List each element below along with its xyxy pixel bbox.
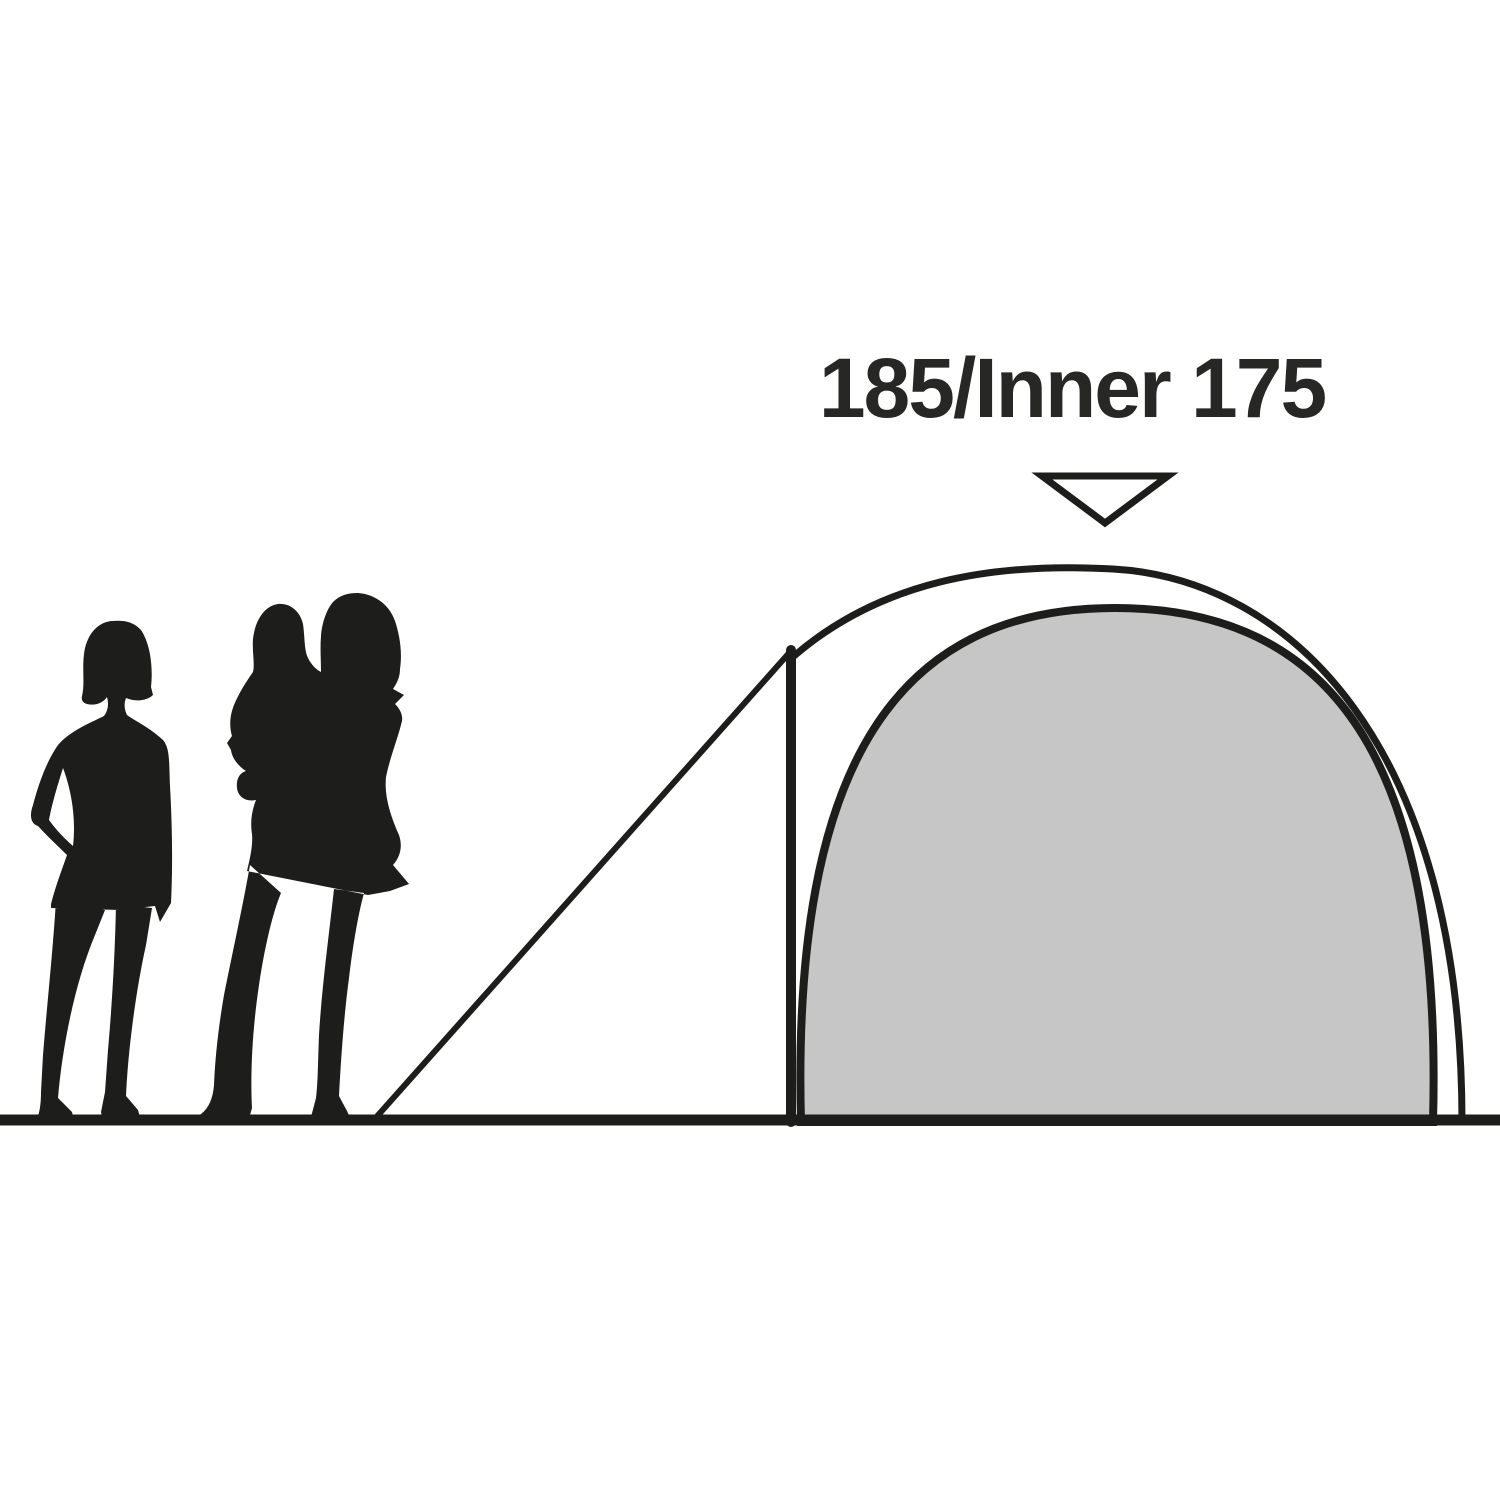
- guy-line: [372, 652, 790, 1122]
- adult-carrying-child-silhouette: [194, 593, 409, 1122]
- triangle-down-icon: [1042, 476, 1168, 523]
- diagram-canvas: 185/Inner 175: [0, 0, 1500, 1500]
- adult-silhouette: [31, 621, 172, 1121]
- height-label: 185/Inner 175: [752, 346, 1392, 430]
- scale-figures: [31, 593, 409, 1122]
- tent-profile: [372, 568, 1462, 1122]
